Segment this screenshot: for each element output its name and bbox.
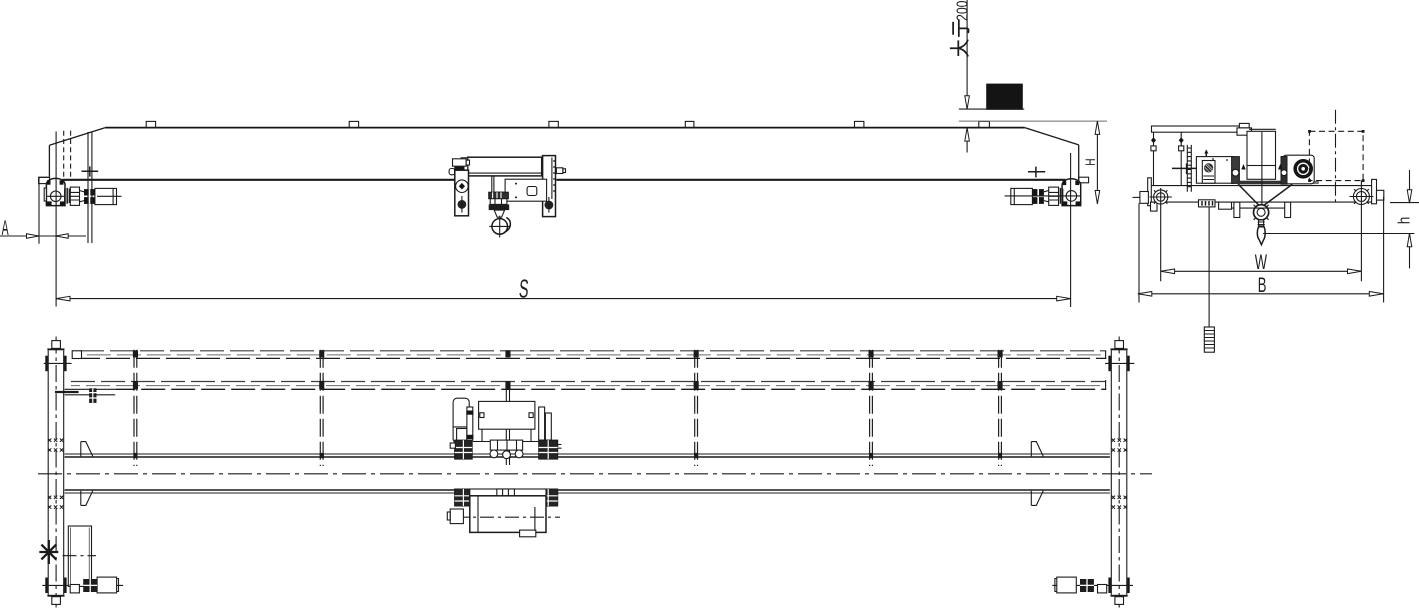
svg-text:200: 200 — [955, 0, 972, 21]
svg-text:W: W — [1255, 250, 1268, 274]
svg-text:H: H — [1083, 159, 1099, 166]
svg-text:B: B — [1258, 273, 1267, 297]
svg-text:S: S — [518, 275, 529, 303]
svg-text:A: A — [2, 216, 10, 240]
svg-text:h: h — [1395, 217, 1414, 225]
